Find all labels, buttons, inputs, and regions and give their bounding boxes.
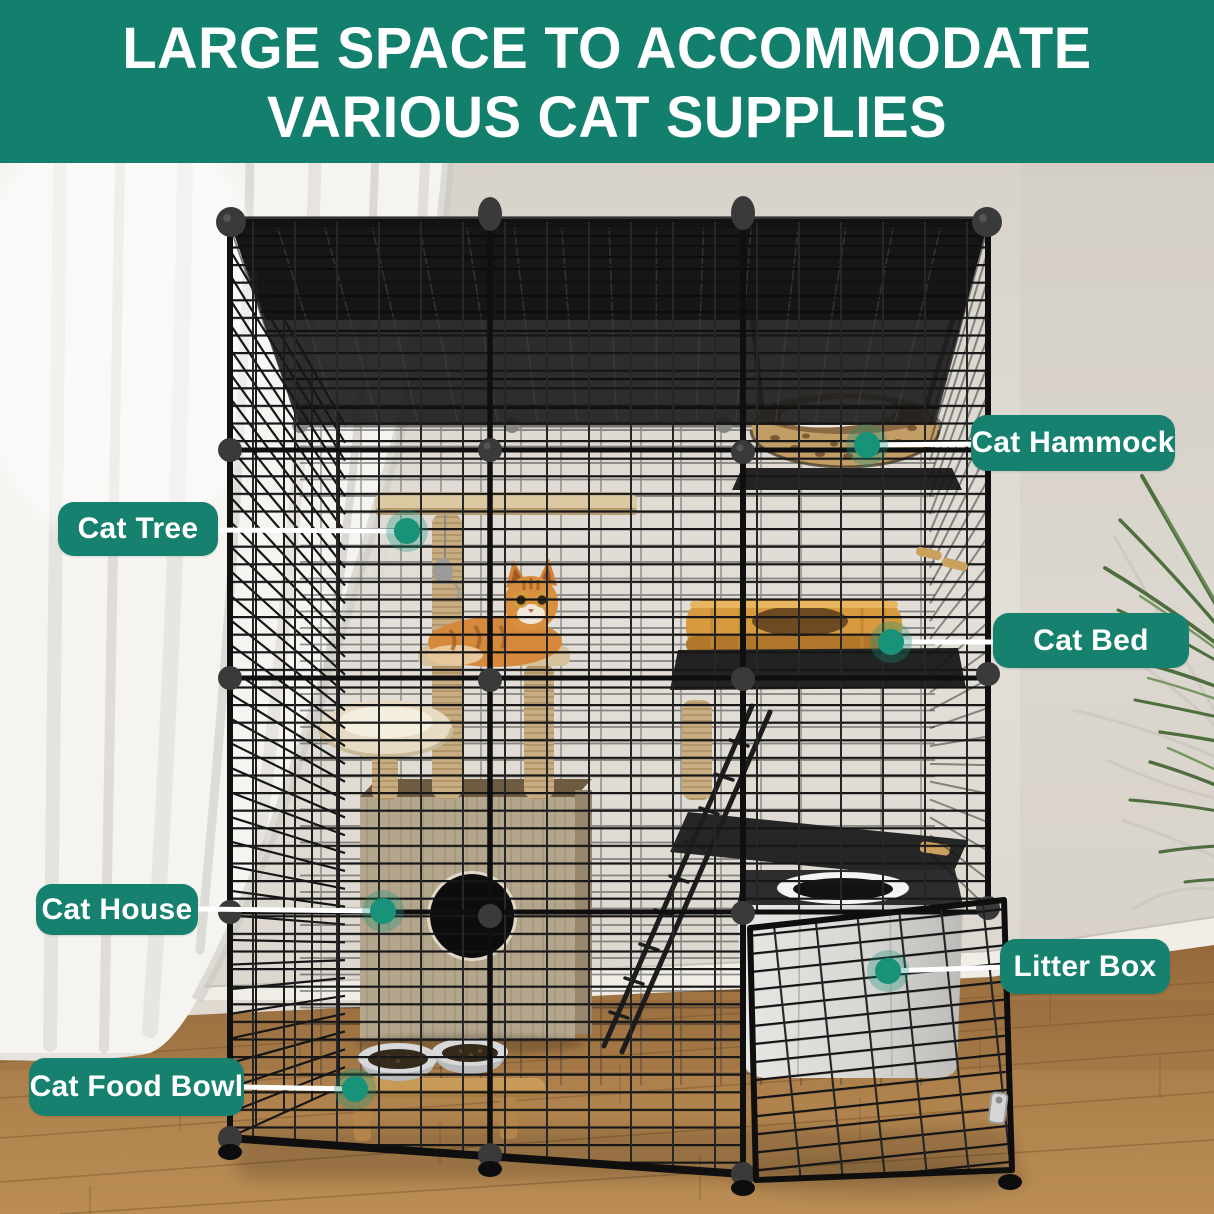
callout-cat-bed: Cat Bed: [993, 613, 1189, 668]
callout-label: Litter Box: [1013, 950, 1156, 984]
callout-label: Cat Food Bowl: [30, 1070, 244, 1104]
callout-dot: [875, 958, 901, 984]
callout-line: [214, 530, 407, 531]
callout-label: Cat Bed: [1033, 624, 1148, 658]
callout-dot: [854, 432, 880, 458]
cage-door-open: [750, 900, 1022, 1190]
callout-dot: [878, 629, 904, 655]
callout-dot: [370, 898, 396, 924]
product-photo: [0, 0, 1214, 1214]
callout-cat-hammock: Cat Hammock: [971, 415, 1175, 471]
callout-cat-food-bowl: Cat Food Bowl: [29, 1058, 244, 1116]
callout-dot: [394, 518, 420, 544]
callout-label: Cat Hammock: [971, 426, 1174, 460]
callout-dot: [342, 1076, 368, 1102]
callout-label: Cat Tree: [78, 512, 199, 546]
header-title-line1: LARGE SPACE TO ACCOMMODATE: [122, 11, 1091, 83]
callout-line: [195, 909, 383, 911]
callout-label: Cat House: [41, 893, 192, 927]
callout-litter-box: Litter Box: [1000, 939, 1170, 994]
header-title-line2: VARIOUS CAT SUPPLIES: [267, 80, 947, 152]
callout-cat-house: Cat House: [36, 884, 198, 935]
product-marketing-image: LARGE SPACE TO ACCOMMODATE VARIOUS CAT S…: [0, 0, 1214, 1214]
header-banner: LARGE SPACE TO ACCOMMODATE VARIOUS CAT S…: [0, 0, 1214, 163]
callout-cat-tree: Cat Tree: [58, 502, 218, 556]
door-latch: [988, 1092, 1008, 1124]
